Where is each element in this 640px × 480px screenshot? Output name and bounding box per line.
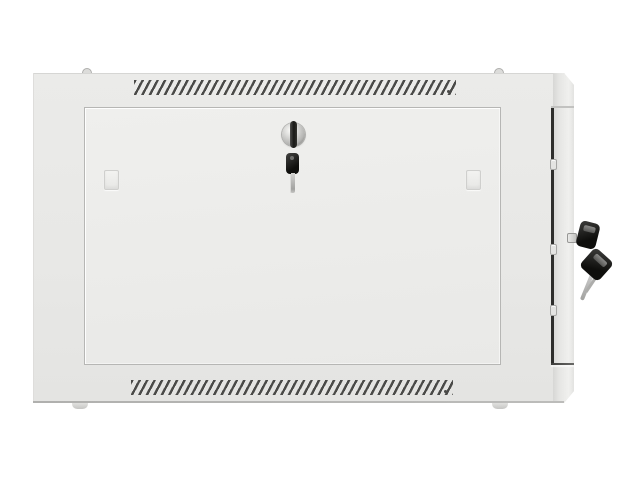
door-clip-right bbox=[466, 170, 481, 190]
side-key-slot bbox=[583, 225, 596, 234]
bottom-edge-line bbox=[33, 401, 564, 403]
door-key-shaft bbox=[291, 173, 295, 193]
side-panel-top-seam bbox=[551, 106, 574, 108]
hinge-nub bbox=[550, 244, 557, 255]
door-clip-left bbox=[104, 170, 119, 190]
cabinet-foot-left bbox=[72, 402, 88, 409]
door-key-ring-hole bbox=[290, 156, 294, 160]
side-key-lower bbox=[579, 247, 614, 282]
vent-end-dot bbox=[444, 390, 447, 393]
hinge-nub bbox=[550, 159, 557, 170]
bottom-vent-grille bbox=[131, 380, 453, 395]
cabinet-foot-right bbox=[492, 402, 508, 409]
side-panel-bottom-seam bbox=[551, 363, 574, 366]
vent-end-dot bbox=[447, 90, 450, 93]
side-key-slot bbox=[593, 253, 608, 267]
cabinet-body bbox=[33, 73, 574, 403]
panel-gap-line bbox=[551, 108, 554, 363]
lock-handle-slot bbox=[290, 121, 297, 148]
top-vent-grille bbox=[134, 80, 456, 95]
product-photo bbox=[0, 0, 640, 480]
side-key-upper bbox=[575, 220, 601, 250]
top-edge-line bbox=[33, 73, 565, 74]
hinge-nub bbox=[550, 305, 557, 316]
left-edge-line bbox=[33, 73, 34, 403]
door-key-head bbox=[286, 153, 299, 174]
